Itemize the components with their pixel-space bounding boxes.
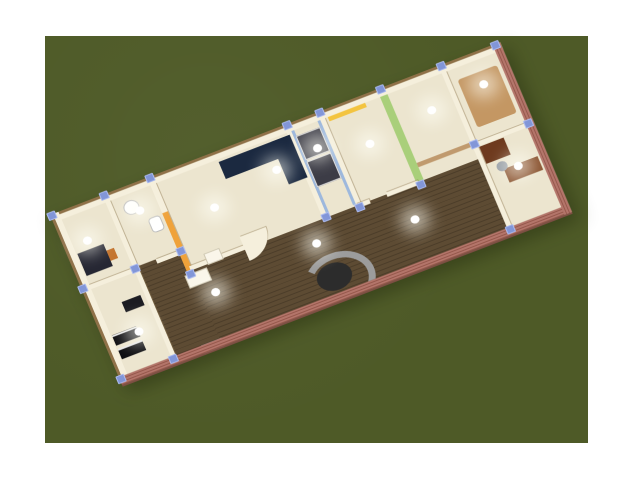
render-viewport[interactable] [0, 0, 640, 480]
